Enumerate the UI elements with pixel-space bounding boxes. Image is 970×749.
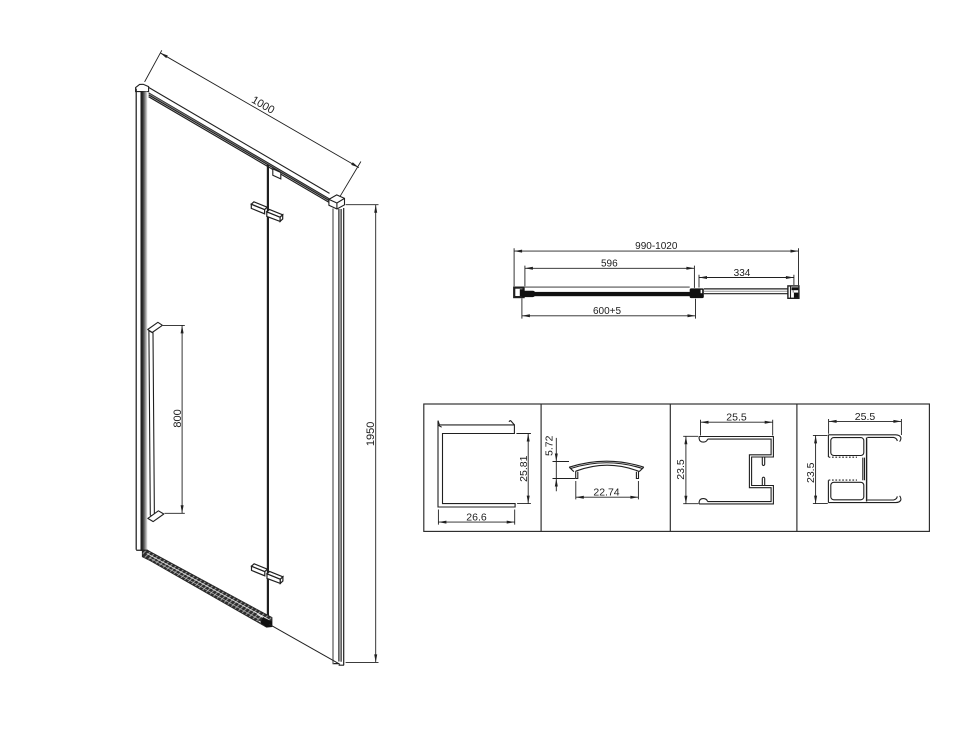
svg-text:800: 800 (172, 409, 184, 427)
svg-text:23.5: 23.5 (675, 459, 687, 480)
svg-text:22.74: 22.74 (593, 487, 619, 499)
svg-text:596: 596 (601, 259, 618, 270)
svg-text:25.5: 25.5 (726, 412, 747, 424)
svg-text:23.5: 23.5 (805, 462, 817, 483)
svg-text:5.72: 5.72 (544, 435, 556, 456)
svg-text:334: 334 (734, 268, 751, 279)
svg-text:600+5: 600+5 (593, 306, 622, 317)
svg-text:990-1020: 990-1020 (635, 241, 678, 252)
svg-text:1000: 1000 (249, 94, 276, 117)
svg-text:26.6: 26.6 (466, 512, 487, 524)
svg-text:25.81: 25.81 (518, 455, 530, 481)
svg-text:25.5: 25.5 (855, 411, 876, 423)
svg-text:1950: 1950 (365, 422, 377, 446)
